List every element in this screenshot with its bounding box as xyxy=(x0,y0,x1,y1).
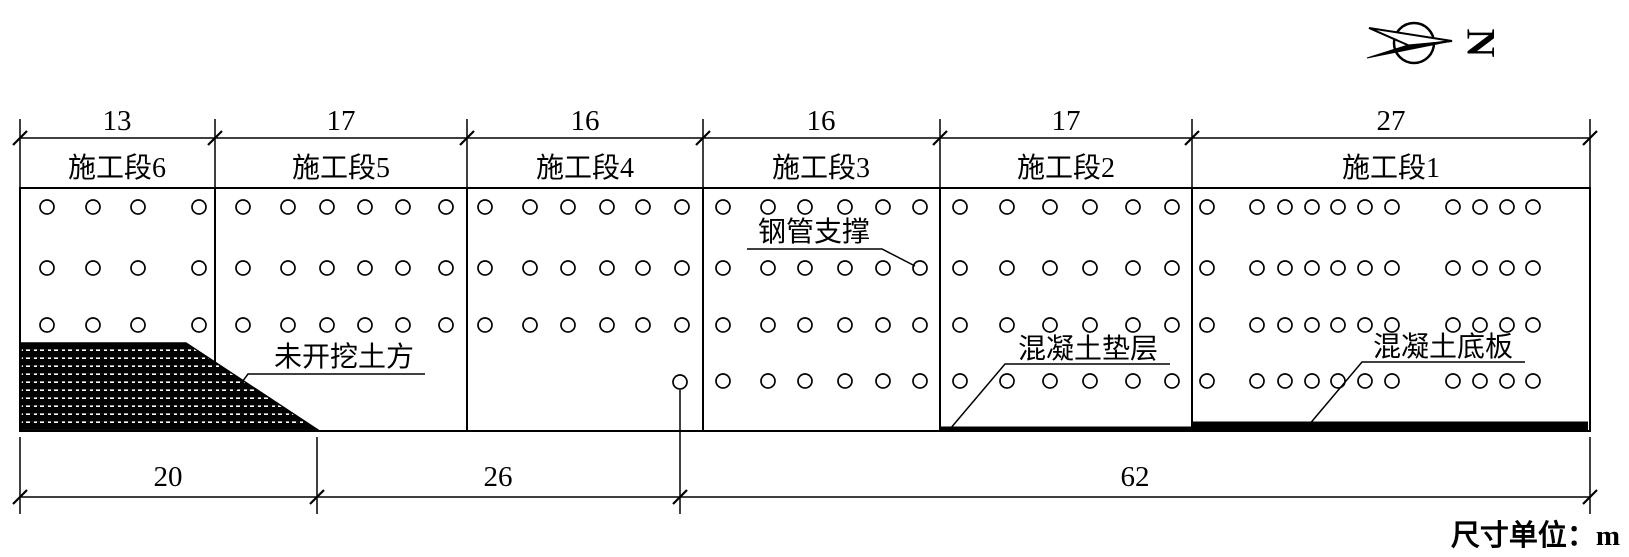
steel-pipe-support-circle xyxy=(675,261,689,275)
steel-pipe-support-circle xyxy=(523,200,537,214)
steel-pipe-support-circle xyxy=(358,261,372,275)
steel-pipe-support-circle xyxy=(439,200,453,214)
steel-pipe-support-circle xyxy=(1250,200,1264,214)
concrete-base-slab-strip xyxy=(1192,422,1588,432)
steel-pipe-support-circle xyxy=(876,200,890,214)
steel-pipe-support-circle xyxy=(1250,261,1264,275)
steel-pipe-support-circle xyxy=(320,318,334,332)
steel-pipe-support-circle xyxy=(913,374,927,388)
steel-pipe-support-circle xyxy=(40,200,54,214)
steel-pipe-support-circle xyxy=(1250,374,1264,388)
steel-pipe-support-circle xyxy=(1331,318,1345,332)
steel-pipe-support-circle xyxy=(1500,200,1514,214)
steel-pipe-support-circle xyxy=(281,261,295,275)
steel-pipe-support-circle xyxy=(716,200,730,214)
steel-pipe-support-circle xyxy=(1358,374,1372,388)
steel-pipe-support-circle xyxy=(1000,261,1014,275)
steel-pipe-support-circle xyxy=(716,318,730,332)
steel-pipe-support-circle xyxy=(236,318,250,332)
steel-pipe-support-circle xyxy=(953,261,967,275)
callout-unexcavated-soil: 未开挖土方 xyxy=(231,341,425,397)
steel-pipe-support-circle xyxy=(761,261,775,275)
steel-pipe-support-circle xyxy=(913,318,927,332)
steel-pipe-support-circle xyxy=(600,261,614,275)
steel-pipe-support-circle xyxy=(1500,261,1514,275)
top-dimension-value: 17 xyxy=(1052,105,1081,137)
callout-steel-pipe-support: 钢管支撑 xyxy=(747,216,915,266)
steel-pipe-support-circle xyxy=(953,200,967,214)
steel-pipe-support-circle xyxy=(1526,318,1540,332)
steel-pipe-support-circle xyxy=(1000,318,1014,332)
steel-pipe-support-circle xyxy=(320,261,334,275)
segment-label: 施工段6 xyxy=(68,152,166,184)
steel-pipe-support-circle xyxy=(953,318,967,332)
steel-pipe-support-circle xyxy=(236,200,250,214)
steel-pipe-support-circle xyxy=(1126,318,1140,332)
steel-pipe-support-circle xyxy=(131,318,145,332)
steel-pipe-support-circle xyxy=(1305,374,1319,388)
steel-pipe-support-circle xyxy=(1526,200,1540,214)
steel-pipe-support-circle xyxy=(876,261,890,275)
steel-pipe-support-circle xyxy=(1200,200,1214,214)
steel-pipe-support-circle xyxy=(1083,318,1097,332)
steel-pipe-support-circle xyxy=(953,374,967,388)
steel-pipe-support-circle xyxy=(1526,261,1540,275)
steel-pipe-support-circle xyxy=(86,200,100,214)
steel-pipe-support-circle xyxy=(281,318,295,332)
steel-pipe-support-circle xyxy=(40,318,54,332)
steel-pipe-support-circle xyxy=(1385,261,1399,275)
callout-text: 混凝土底板 xyxy=(1373,331,1513,363)
steel-pipe-support-circle xyxy=(523,261,537,275)
north-label: N xyxy=(1459,29,1504,58)
steel-pipe-support-circle xyxy=(1083,261,1097,275)
top-dimension-value: 17 xyxy=(327,105,356,137)
steel-pipe-support-circle xyxy=(1446,318,1460,332)
steel-pipe-support-circle xyxy=(1500,374,1514,388)
steel-pipe-support-circle xyxy=(1305,261,1319,275)
steel-pipe-support-circle xyxy=(1126,261,1140,275)
steel-pipe-support-circle xyxy=(1385,200,1399,214)
steel-pipe-support-circle xyxy=(798,318,812,332)
bottom-dimension-value: 20 xyxy=(154,461,183,493)
steel-pipe-support-circle xyxy=(913,200,927,214)
steel-pipe-support-circle xyxy=(876,374,890,388)
steel-pipe-support-circle xyxy=(131,200,145,214)
steel-pipe-support-circle xyxy=(478,318,492,332)
steel-pipe-support-circle xyxy=(192,200,206,214)
steel-pipe-support-circle xyxy=(40,261,54,275)
leader-line xyxy=(1308,362,1525,426)
steel-pipe-support-circle xyxy=(439,261,453,275)
segment-label: 施工段3 xyxy=(772,152,870,184)
steel-pipe-support-circle xyxy=(561,261,575,275)
top-dimension-value: 27 xyxy=(1377,105,1406,137)
steel-pipe-support-circle xyxy=(192,261,206,275)
segment-label-row: 施工段6 施工段5 施工段4 施工段3 施工段2 施工段1 xyxy=(68,152,1440,184)
unit-note: 尺寸单位：m xyxy=(1451,518,1620,552)
bottom-dimension-value: 26 xyxy=(484,461,513,493)
segment-label: 施工段2 xyxy=(1017,152,1115,184)
steel-pipe-support-circle xyxy=(1165,200,1179,214)
steel-pipe-support-circle xyxy=(876,318,890,332)
steel-pipe-support-circle xyxy=(1358,318,1372,332)
steel-pipe-support-circle xyxy=(913,261,927,275)
steel-pipe-support-circle xyxy=(600,318,614,332)
steel-pipe-support-circle xyxy=(1305,318,1319,332)
steel-pipe-support-circle xyxy=(761,374,775,388)
top-dimension-value: 13 xyxy=(103,105,132,137)
steel-pipe-support-circle xyxy=(1043,261,1057,275)
steel-pipe-support-circle xyxy=(1358,261,1372,275)
steel-pipe-support-circle xyxy=(1043,374,1057,388)
steel-pipe-support-circle xyxy=(1385,374,1399,388)
steel-pipe-support-circle xyxy=(600,200,614,214)
steel-pipe-support-circle xyxy=(1200,374,1214,388)
steel-pipe-support-circle xyxy=(320,200,334,214)
steel-pipe-support-circle xyxy=(838,318,852,332)
segment-label: 施工段4 xyxy=(536,152,634,184)
steel-pipe-support-circle xyxy=(1083,374,1097,388)
steel-pipe-support-circle xyxy=(1165,374,1179,388)
steel-pipe-support-circle xyxy=(716,374,730,388)
steel-pipe-support-circle xyxy=(1165,318,1179,332)
steel-pipe-support-circle xyxy=(1200,318,1214,332)
construction-plan-page: N 13 17 16 16 17 27 施工段6 施工段5 施工段4 施工段3 … xyxy=(0,0,1629,557)
steel-pipe-support-circle xyxy=(838,261,852,275)
steel-pipe-support-circle xyxy=(1278,374,1292,388)
steel-pipe-support-circle xyxy=(1526,374,1540,388)
steel-pipe-support-circle xyxy=(798,374,812,388)
steel-pipe-support-circle xyxy=(1126,374,1140,388)
steel-pipe-support-circle xyxy=(1358,200,1372,214)
steel-pipe-support-circle xyxy=(761,318,775,332)
steel-pipe-support-circle xyxy=(131,261,145,275)
segment-label: 施工段1 xyxy=(1342,152,1440,184)
steel-pipe-support-circle xyxy=(192,318,206,332)
segment-label: 施工段5 xyxy=(292,152,390,184)
callout-text: 混凝土垫层 xyxy=(1018,333,1158,365)
steel-pipe-support-circle xyxy=(1126,200,1140,214)
steel-pipe-support-circle xyxy=(673,375,687,389)
leader-line xyxy=(950,364,1170,429)
steel-pipe-support-circle xyxy=(1043,318,1057,332)
construction-plan-drawing: N 13 17 16 16 17 27 施工段6 施工段5 施工段4 施工段3 … xyxy=(0,0,1629,557)
steel-pipe-support-circle xyxy=(86,318,100,332)
steel-pipe-support-circle xyxy=(561,200,575,214)
steel-pipe-support-circle xyxy=(798,200,812,214)
steel-pipe-support-circle xyxy=(675,200,689,214)
steel-pipe-support-circle xyxy=(1331,261,1345,275)
steel-pipe-support-circle xyxy=(1278,261,1292,275)
steel-pipe-support-circle xyxy=(1200,261,1214,275)
steel-pipe-support-circle xyxy=(1446,261,1460,275)
steel-pipe-support-circle xyxy=(281,200,295,214)
steel-pipe-support-circle xyxy=(478,261,492,275)
steel-pipe-support-circle xyxy=(1278,318,1292,332)
steel-pipe-support-circle xyxy=(636,261,650,275)
steel-pipe-support-circle xyxy=(561,318,575,332)
steel-pipe-support-circle xyxy=(675,318,689,332)
steel-pipe-support-circle xyxy=(523,318,537,332)
steel-pipe-support-circle xyxy=(798,261,812,275)
top-dimension-value: 16 xyxy=(571,105,600,137)
steel-pipe-support-circle xyxy=(236,261,250,275)
steel-pipe-support-circle xyxy=(86,261,100,275)
north-arrow: N xyxy=(1367,23,1504,63)
steel-pipe-support-circle xyxy=(1500,318,1514,332)
steel-pipe-support-circle xyxy=(1473,318,1487,332)
steel-pipe-support-circle xyxy=(1331,200,1345,214)
steel-pipe-support-circle xyxy=(761,200,775,214)
steel-pipe-support-circle xyxy=(1473,374,1487,388)
steel-pipe-support-circle xyxy=(396,200,410,214)
steel-pipe-support-circle xyxy=(1385,318,1399,332)
steel-pipe-support-circle xyxy=(636,318,650,332)
steel-pipe-support-circle xyxy=(636,200,650,214)
steel-pipe-support-circle xyxy=(838,200,852,214)
callout-text: 钢管支撑 xyxy=(758,216,870,248)
steel-pipe-support-circle xyxy=(1473,200,1487,214)
steel-pipe-support-circle xyxy=(1000,374,1014,388)
steel-pipe-support-circle xyxy=(1446,200,1460,214)
steel-pipe-support-circle xyxy=(358,318,372,332)
steel-pipe-support-circle xyxy=(478,200,492,214)
steel-pipe-support-circle xyxy=(358,200,372,214)
steel-pipe-support-circle xyxy=(1165,261,1179,275)
steel-pipe-support-circle xyxy=(1331,374,1345,388)
steel-pipe-support-circle xyxy=(1305,200,1319,214)
steel-pipe-support-circle xyxy=(396,318,410,332)
top-dimension-value: 16 xyxy=(807,105,836,137)
steel-pipe-support-circle xyxy=(1043,200,1057,214)
bottom-dimension-value: 62 xyxy=(1121,461,1150,493)
steel-pipe-support-circle xyxy=(1278,200,1292,214)
steel-pipe-support-circle xyxy=(716,261,730,275)
steel-pipe-support-circle xyxy=(1250,318,1264,332)
callout-text: 未开挖土方 xyxy=(274,341,414,373)
concrete-cushion-strip xyxy=(940,427,1192,432)
steel-pipe-support-circle xyxy=(1083,200,1097,214)
steel-pipe-support-circle xyxy=(396,261,410,275)
steel-pipe-support-circle xyxy=(439,318,453,332)
steel-pipe-support-circle xyxy=(838,374,852,388)
steel-pipe-support-circle xyxy=(1000,200,1014,214)
steel-pipe-support-circle xyxy=(1473,261,1487,275)
steel-pipe-support-circle xyxy=(1446,374,1460,388)
